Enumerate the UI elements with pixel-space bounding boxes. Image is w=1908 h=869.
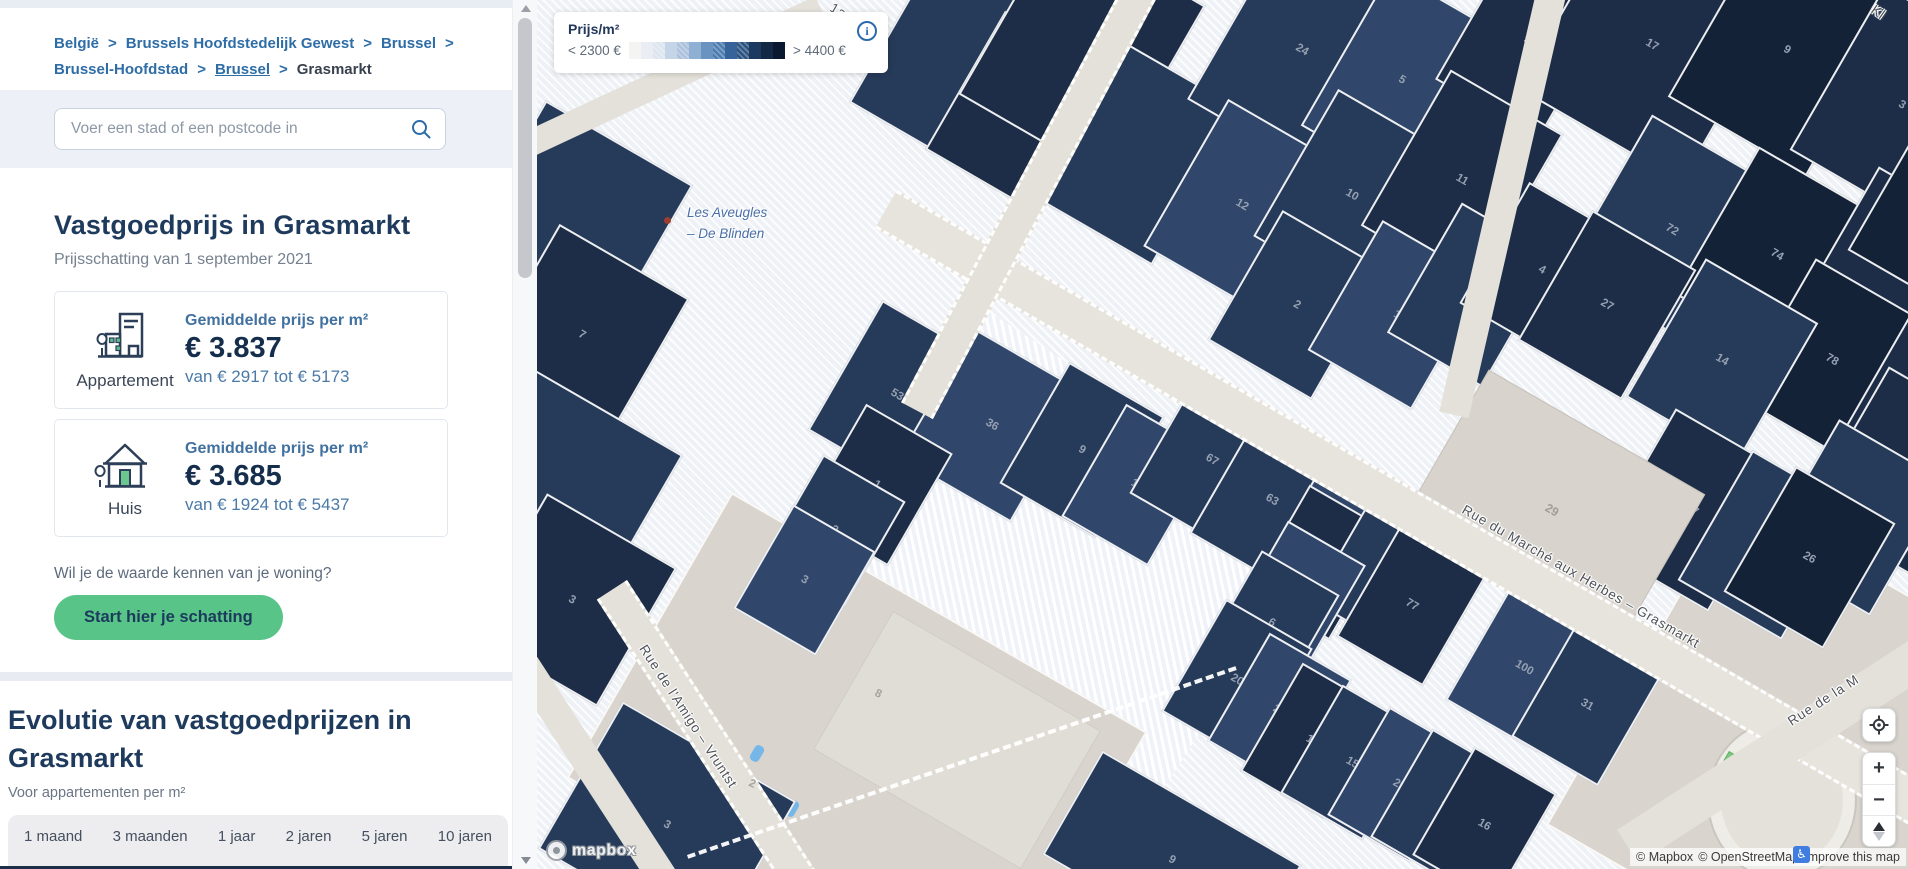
start-estimate-button[interactable]: Start hier je schatting bbox=[54, 595, 283, 640]
mapbox-logo-icon bbox=[546, 840, 567, 861]
legend-max-label: > 4400 € bbox=[793, 43, 846, 58]
search-input[interactable] bbox=[71, 120, 410, 138]
section-divider bbox=[0, 672, 512, 681]
page-title: Vastgoedprijs in Grasmarkt bbox=[54, 210, 458, 241]
breadcrumb-separator: > bbox=[108, 32, 117, 55]
compass-button[interactable] bbox=[1863, 815, 1895, 846]
map-attribution: © Mapbox© OpenStreetMapImprove this map bbox=[1630, 848, 1906, 866]
evolution-title: Evolutie van vastgoedprijzen in Grasmark… bbox=[8, 701, 478, 778]
poi-label-line2: – De Blinden bbox=[687, 224, 767, 245]
legend-swatch bbox=[713, 42, 725, 59]
search-box[interactable] bbox=[54, 108, 446, 150]
legend-swatch bbox=[761, 42, 773, 59]
apartment-price-card: Appartement Gemiddelde prijs per m² € 3.… bbox=[54, 291, 448, 409]
apartment-label: Appartement bbox=[76, 371, 173, 391]
search-section bbox=[0, 90, 512, 168]
attribution-link[interactable]: © OpenStreetMap bbox=[1698, 850, 1799, 864]
breadcrumb-separator: > bbox=[197, 58, 206, 81]
legend-row: < 2300 € > 4400 € bbox=[568, 42, 874, 59]
sidebar: België>Brussels Hoofdstedelijk Gewest>Br… bbox=[0, 0, 537, 869]
breadcrumb-separator: > bbox=[279, 58, 288, 81]
app: België>Brussels Hoofdstedelijk Gewest>Br… bbox=[0, 0, 1908, 869]
house-price-range: van € 1924 tot € 5437 bbox=[185, 495, 368, 515]
breadcrumb-item[interactable]: Brussel bbox=[215, 58, 270, 81]
price-map[interactable]: 7324591210112164179372742788014272253369… bbox=[537, 0, 1908, 869]
map-zoom-controls: + − bbox=[1862, 752, 1896, 847]
search-icon[interactable] bbox=[410, 118, 432, 140]
legend-swatch bbox=[725, 42, 737, 59]
legend-swatch bbox=[689, 42, 701, 59]
scrollbar-thumb[interactable] bbox=[518, 18, 532, 278]
legend-swatch bbox=[665, 42, 677, 59]
breadcrumb-item[interactable]: Brussels Hoofdstedelijk Gewest bbox=[126, 32, 354, 55]
breadcrumb-item: Grasmarkt bbox=[297, 58, 372, 81]
tab-1-jaar[interactable]: 1 jaar bbox=[218, 828, 256, 845]
avg-price-label: Gemiddelde prijs per m² bbox=[185, 440, 368, 458]
legend-swatch bbox=[773, 42, 785, 59]
page-subtitle: Prijsschatting van 1 september 2021 bbox=[54, 251, 458, 269]
apartment-icon-wrap: Appartement bbox=[65, 304, 185, 396]
breadcrumb-separator: > bbox=[445, 32, 454, 55]
cta-question: Wil je de waarde kennen van je woning? bbox=[54, 565, 458, 583]
apartment-avg-price: € 3.837 bbox=[185, 332, 368, 365]
house-icon-wrap: Huis bbox=[65, 432, 185, 524]
scroll-up-arrow-icon[interactable] bbox=[521, 5, 531, 12]
attribution-link[interactable]: © Mapbox bbox=[1636, 850, 1693, 864]
loose-number-layer: 28 bbox=[537, 0, 1908, 869]
breadcrumb-separator: > bbox=[363, 32, 372, 55]
legend-swatch bbox=[653, 42, 665, 59]
breadcrumb-item[interactable]: België bbox=[54, 32, 99, 55]
mapbox-logo-text: mapbox bbox=[572, 842, 636, 860]
evolution-tabs: 1 maand3 maanden1 jaar2 jaren5 jaren10 j… bbox=[8, 815, 508, 867]
map-number: 8 bbox=[873, 687, 884, 701]
evolution-section: Evolutie van vastgoedprijzen in Grasmark… bbox=[0, 681, 512, 868]
house-card-text: Gemiddelde prijs per m² € 3.685 van € 19… bbox=[185, 432, 368, 524]
mapbox-logo[interactable]: mapbox bbox=[546, 840, 636, 861]
top-strip bbox=[0, 0, 512, 8]
zoom-out-button[interactable]: − bbox=[1863, 784, 1895, 815]
legend-title: Prijs/m² bbox=[568, 21, 874, 37]
house-icon bbox=[92, 436, 158, 496]
avg-price-label: Gemiddelde prijs per m² bbox=[185, 312, 368, 330]
geolocate-icon bbox=[1869, 715, 1889, 735]
sidebar-content: België>Brussels Hoofdstedelijk Gewest>Br… bbox=[0, 0, 512, 869]
tab-2-jaren[interactable]: 2 jaren bbox=[286, 828, 332, 845]
breadcrumb-item[interactable]: Brussel bbox=[381, 32, 436, 55]
breadcrumb-item[interactable]: Brussel-Hoofdstad bbox=[54, 58, 188, 81]
house-label: Huis bbox=[108, 499, 142, 519]
apartment-price-range: van € 2917 tot € 5173 bbox=[185, 367, 368, 387]
attribution-link[interactable]: Improve this map bbox=[1804, 850, 1900, 864]
price-cards: Appartement Gemiddelde prijs per m² € 3.… bbox=[54, 291, 448, 537]
apartment-icon bbox=[93, 308, 157, 368]
house-price-card: Huis Gemiddelde prijs per m² € 3.685 van… bbox=[54, 419, 448, 537]
accessibility-icon[interactable]: ♿ bbox=[1793, 846, 1810, 863]
legend-scale bbox=[629, 42, 785, 59]
geolocate-button[interactable] bbox=[1862, 708, 1896, 742]
tab-10-jaren[interactable]: 10 jaren bbox=[438, 828, 492, 845]
legend-swatch bbox=[629, 42, 641, 59]
price-legend: Prijs/m² i < 2300 € > 4400 € bbox=[554, 12, 888, 73]
house-avg-price: € 3.685 bbox=[185, 460, 368, 493]
scroll-down-arrow-icon[interactable] bbox=[521, 857, 531, 864]
legend-swatch bbox=[737, 42, 749, 59]
info-icon[interactable]: i bbox=[857, 21, 877, 41]
evolution-subtitle: Voor appartementen per m² bbox=[8, 785, 504, 801]
breadcrumb: België>Brussels Hoofdstedelijk Gewest>Br… bbox=[54, 32, 458, 82]
legend-swatch bbox=[749, 42, 761, 59]
zoom-in-button[interactable]: + bbox=[1863, 753, 1895, 784]
sidebar-scrollbar[interactable] bbox=[512, 0, 537, 869]
poi-marker bbox=[664, 217, 671, 224]
tab-5-jaren[interactable]: 5 jaren bbox=[362, 828, 408, 845]
legend-min-label: < 2300 € bbox=[568, 43, 621, 58]
tab-3-maanden[interactable]: 3 maanden bbox=[113, 828, 188, 845]
compass-icon bbox=[1873, 822, 1885, 841]
legend-swatch bbox=[701, 42, 713, 59]
legend-swatch bbox=[677, 42, 689, 59]
map-number: 2 bbox=[747, 777, 758, 791]
apartment-card-text: Gemiddelde prijs per m² € 3.837 van € 29… bbox=[185, 304, 368, 396]
tab-1-maand[interactable]: 1 maand bbox=[24, 828, 82, 845]
legend-swatch bbox=[641, 42, 653, 59]
poi-label-line1: Les Aveugles bbox=[687, 203, 767, 224]
poi-label: Les Aveugles – De Blinden bbox=[687, 203, 767, 245]
